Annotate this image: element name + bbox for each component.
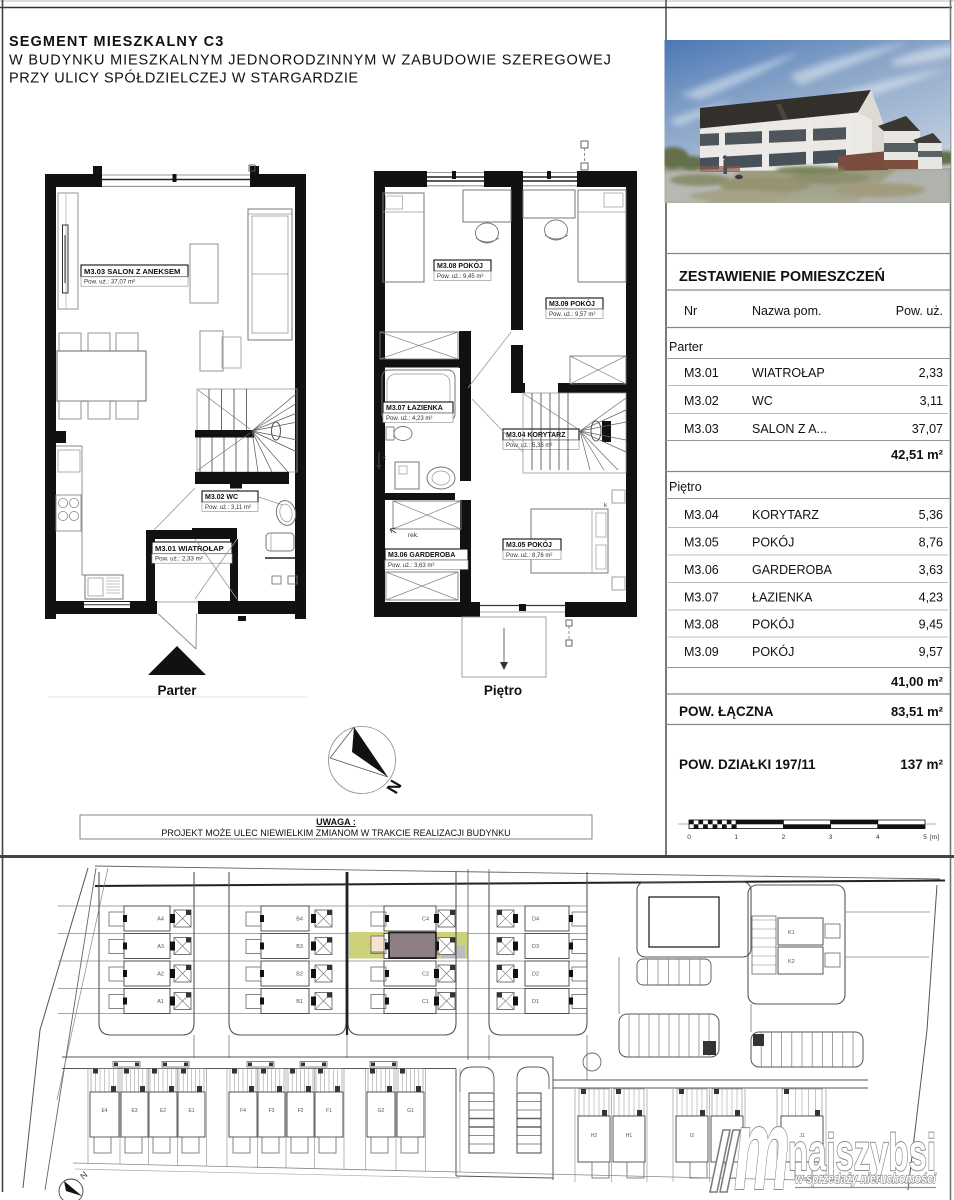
svg-text:UWAGA :: UWAGA : [316,817,356,827]
svg-text:9,57: 9,57 [919,645,943,659]
svg-text:F4: F4 [240,1108,246,1114]
svg-text:POKÓJ: POKÓJ [752,535,794,550]
svg-text:C4: C4 [422,917,429,923]
svg-text:ZESTAWIENIE POMIESZCZEŃ: ZESTAWIENIE POMIESZCZEŃ [679,268,885,285]
svg-text:B2: B2 [296,972,303,978]
svg-text:POKÓJ: POKÓJ [752,644,794,659]
svg-text:Pow. uż.: 4,23 m²: Pow. uż.: 4,23 m² [386,416,432,422]
svg-text:M3.04 KORYTARZ: M3.04 KORYTARZ [506,432,566,439]
svg-text:M3.08: M3.08 [684,618,719,632]
svg-text:POW. DZIAŁKI 197/11: POW. DZIAŁKI 197/11 [679,757,816,772]
svg-text:3,63: 3,63 [919,563,943,577]
svg-text:Pow. uż.: 8,76 m²: Pow. uż.: 8,76 m² [506,553,552,559]
svg-text:4,23: 4,23 [919,591,943,605]
svg-text:0: 0 [687,834,691,841]
svg-text:M3.01 WIATROŁAP: M3.01 WIATROŁAP [155,544,224,553]
svg-text:WIATROŁAP: WIATROŁAP [752,366,825,380]
svg-text:M3.02 WC: M3.02 WC [205,494,238,501]
svg-text:M3.05 POKÓJ: M3.05 POKÓJ [506,540,552,549]
svg-text:Parter: Parter [669,340,703,354]
svg-text:9,45: 9,45 [919,618,943,632]
svg-text:ŁAZIENKA: ŁAZIENKA [752,591,813,605]
svg-text:POKÓJ: POKÓJ [752,617,794,632]
svg-text:N: N [78,1169,90,1181]
svg-text:Pow. uż.: 9,45 m²: Pow. uż.: 9,45 m² [437,274,483,280]
svg-text:M3.03 SALON Z ANEKSEM: M3.03 SALON Z ANEKSEM [84,267,180,276]
svg-text:F3: F3 [269,1108,275,1114]
svg-text:Piętro: Piętro [669,480,702,494]
svg-text:E1: E1 [188,1108,194,1114]
svg-text:E4: E4 [101,1108,107,1114]
svg-text:Pow. uż.: 37,07 m²: Pow. uż.: 37,07 m² [84,279,135,286]
svg-text:M3.06: M3.06 [684,563,719,577]
svg-text:A3: A3 [157,944,164,950]
svg-text:A1: A1 [157,999,164,1005]
svg-text:M3.03: M3.03 [684,422,719,436]
svg-text:A4: A4 [157,917,164,923]
svg-text:w sprzedaży nieruchomości: w sprzedaży nieruchomości [795,1170,937,1186]
svg-text:42,51 m²: 42,51 m² [891,447,944,462]
svg-text:M3.08 POKÓJ: M3.08 POKÓJ [437,261,483,270]
svg-text:KORYTARZ: KORYTARZ [752,508,819,522]
svg-text:M3.07 ŁAZIENKA: M3.07 ŁAZIENKA [386,405,443,412]
svg-text:POW. ŁĄCZNA: POW. ŁĄCZNA [679,704,774,719]
svg-text:I2: I2 [690,1133,694,1139]
svg-text:Pow. uż.: 5,36 m²: Pow. uż.: 5,36 m² [506,443,552,449]
svg-text:G2: G2 [378,1108,385,1114]
svg-text:N: N [383,777,406,797]
svg-text:M3.01: M3.01 [684,366,719,380]
svg-text:m: m [734,1086,790,1200]
svg-text:D1: D1 [532,999,539,1005]
svg-text:B4: B4 [296,917,303,923]
svg-text:41,00 m²: 41,00 m² [891,674,944,689]
svg-text:M3.09 POKÓJ: M3.09 POKÓJ [549,299,595,308]
svg-text:2: 2 [782,834,786,841]
svg-text:K2: K2 [788,959,795,965]
svg-text:2,33: 2,33 [919,366,943,380]
svg-text:3,11: 3,11 [920,394,943,408]
svg-text:D3: D3 [532,944,539,950]
svg-text:Nazwa pom.: Nazwa pom. [752,304,821,318]
svg-text:5,36: 5,36 [919,508,943,522]
svg-text:Piętro: Piętro [484,683,522,698]
svg-text:C1: C1 [422,999,429,1005]
svg-text:B1: B1 [296,999,303,1005]
svg-text:D2: D2 [532,972,539,978]
svg-text:GARDEROBA: GARDEROBA [752,563,833,577]
svg-text:Pow. uż.: 9,57 m²: Pow. uż.: 9,57 m² [549,312,595,318]
svg-text:Nr: Nr [684,304,697,318]
svg-text:M3.09: M3.09 [684,645,719,659]
svg-text:SEGMENT MIESZKALNY C3: SEGMENT MIESZKALNY C3 [9,34,224,50]
svg-text:G1: G1 [407,1108,414,1114]
svg-text:D4: D4 [532,917,539,923]
svg-text:37,07: 37,07 [912,422,943,436]
svg-text:K1: K1 [788,930,795,936]
svg-text:C2: C2 [422,972,429,978]
svg-text:W BUDYNKU MIESZKALNYM JEDNOROD: W BUDYNKU MIESZKALNYM JEDNORODZINNYM W Z… [9,53,612,69]
svg-text:M3.07: M3.07 [684,591,719,605]
svg-text:Pow. uż.: 2,33 m²: Pow. uż.: 2,33 m² [155,556,203,563]
svg-text:M3.06 GARDEROBA: M3.06 GARDEROBA [388,552,455,559]
svg-text:M3.05: M3.05 [684,536,719,550]
svg-text:Pow. uż.: Pow. uż. [896,304,943,318]
svg-text:8,76: 8,76 [919,536,943,550]
svg-text:Pow. uż.: 3,63 m²: Pow. uż.: 3,63 m² [388,563,434,569]
svg-text:WC: WC [752,394,773,408]
svg-text:H1: H1 [626,1133,633,1139]
svg-text:PRZY ULICY SPÓŁDZIELCZEJ W STA: PRZY ULICY SPÓŁDZIELCZEJ W STARGARDZIE [9,70,359,87]
svg-text:1: 1 [734,834,738,841]
svg-text:[m]: [m] [930,834,939,841]
svg-text:rek.: rek. [408,532,419,539]
svg-text:E2: E2 [160,1108,166,1114]
svg-text:137 m²: 137 m² [900,757,943,772]
svg-text:B3: B3 [296,944,303,950]
svg-text:F1: F1 [326,1108,332,1114]
svg-text:5: 5 [923,834,927,841]
svg-text:83,51 m²: 83,51 m² [891,704,944,719]
svg-text:M3.02: M3.02 [684,394,719,408]
svg-text:A2: A2 [157,972,164,978]
svg-text:F2: F2 [298,1108,304,1114]
svg-text:Pow. uż.: 3,11 m²: Pow. uż.: 3,11 m² [205,505,251,511]
svg-text:4: 4 [876,834,880,841]
svg-text:PROJEKT MOŻE ULEC NIEWIELKIM Z: PROJEKT MOŻE ULEC NIEWIELKIM ZMIANOM W T… [161,828,510,838]
svg-text:SALON Z A...: SALON Z A... [752,422,827,436]
svg-text:M3.04: M3.04 [684,508,719,522]
svg-text:H2: H2 [591,1133,598,1139]
svg-text:3: 3 [829,834,833,841]
svg-text:E3: E3 [131,1108,137,1114]
svg-text:Parter: Parter [157,683,197,698]
